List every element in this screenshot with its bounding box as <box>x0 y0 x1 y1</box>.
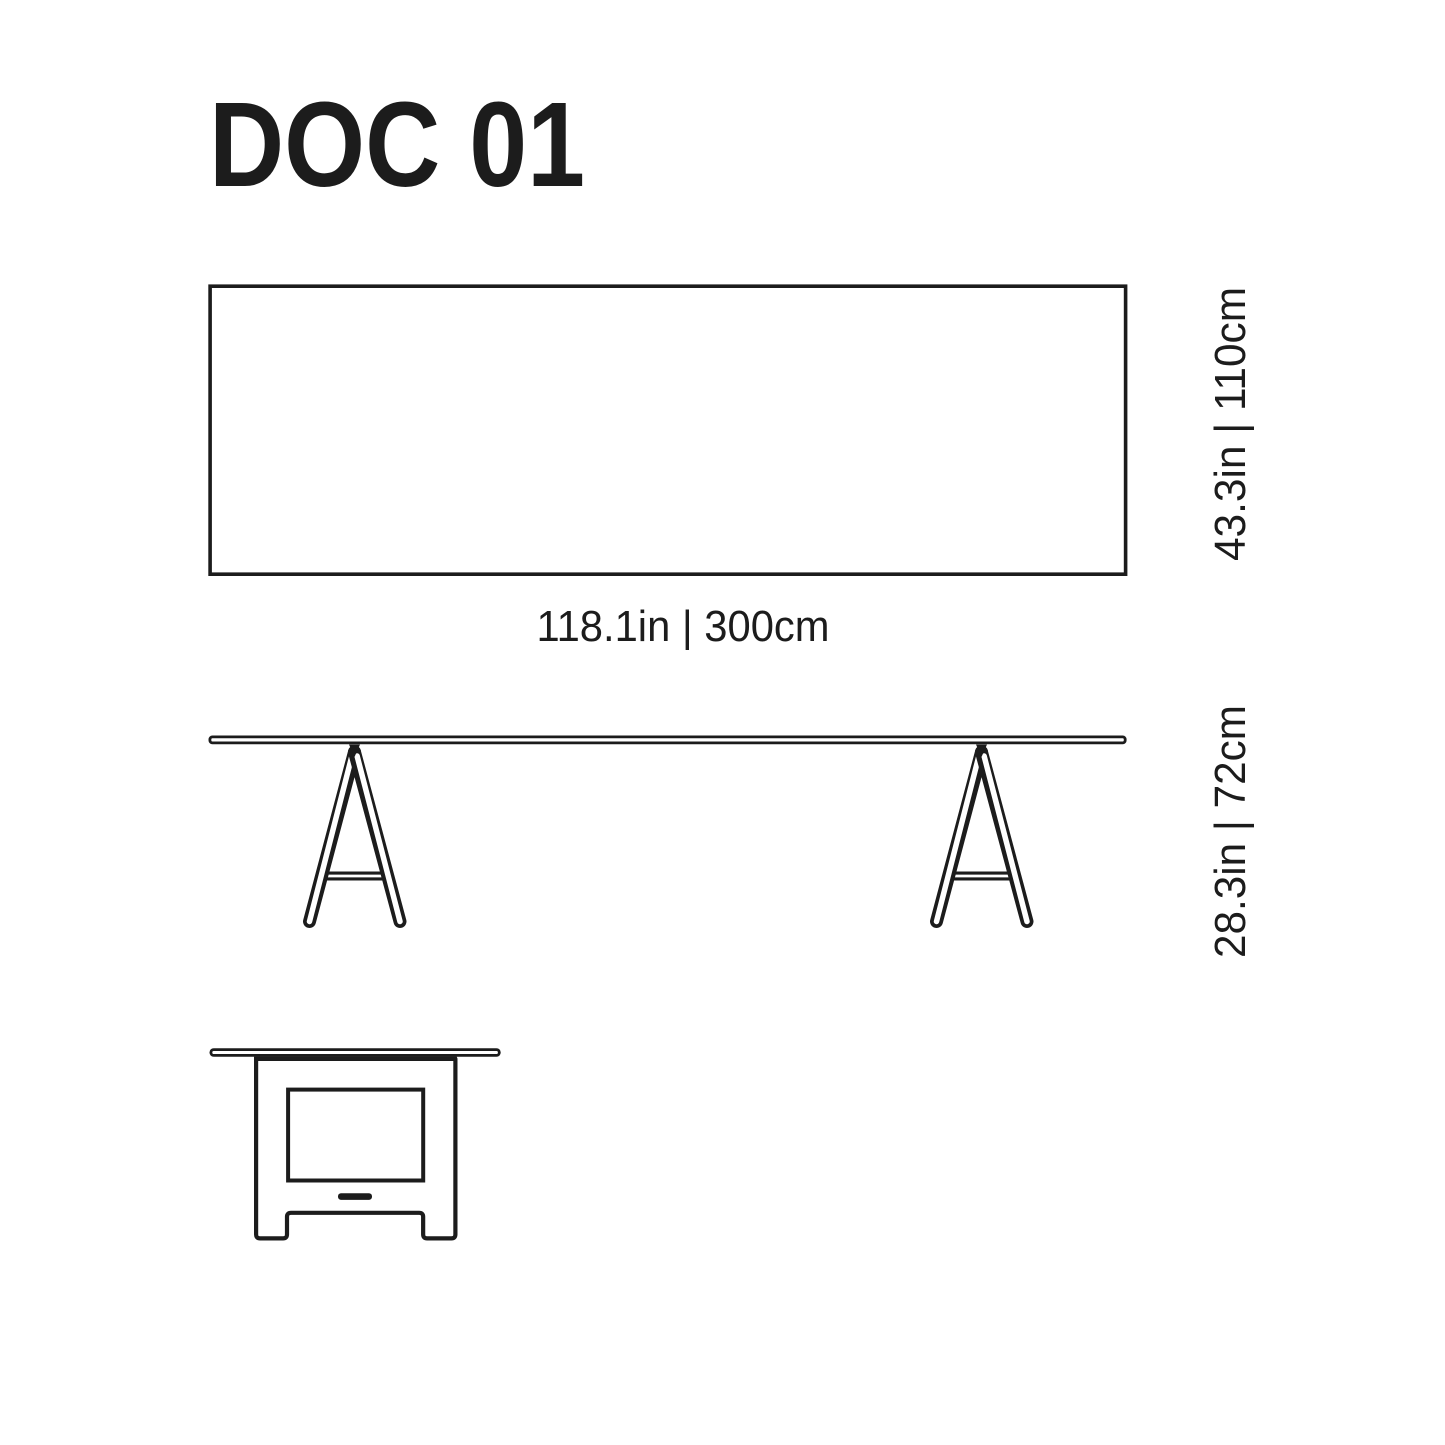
svg-text:28.3in | 72cm: 28.3in | 72cm <box>1206 705 1255 958</box>
svg-text:118.1in | 300cm: 118.1in | 300cm <box>537 602 830 651</box>
svg-text:43.3in | 110cm: 43.3in | 110cm <box>1206 287 1255 561</box>
svg-text:DOC 01: DOC 01 <box>209 76 585 212</box>
